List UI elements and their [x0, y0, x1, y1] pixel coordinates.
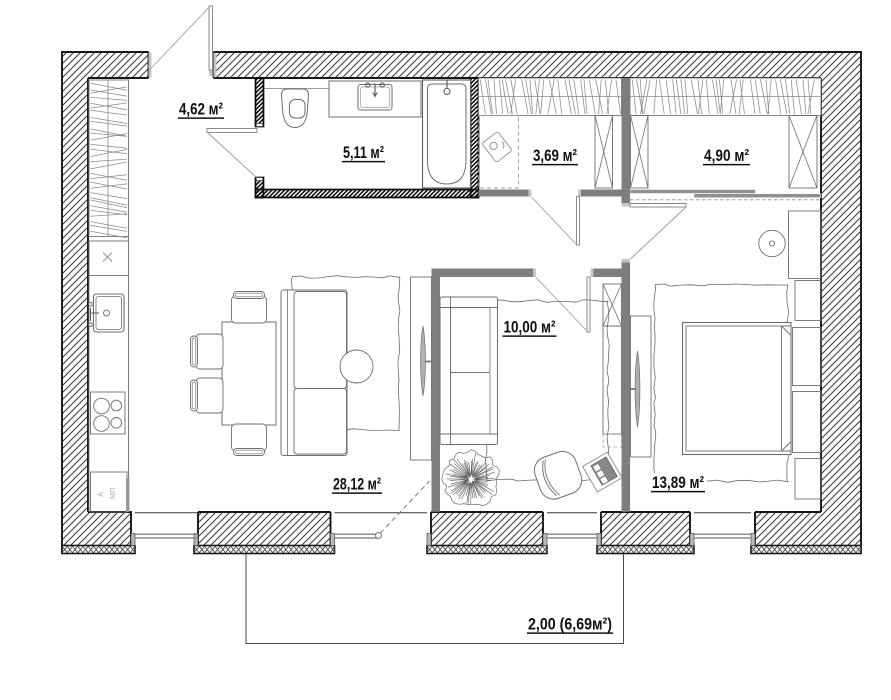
svg-text:4,62 м²: 4,62 м² — [179, 100, 223, 119]
svg-text:2,00 (6,69м²): 2,00 (6,69м²) — [528, 615, 612, 634]
svg-text:4,90 м²: 4,90 м² — [704, 146, 749, 165]
svg-text:13,89 м²: 13,89 м² — [652, 473, 704, 492]
svg-text:A: A — [96, 492, 105, 497]
svg-text:5,11 м²: 5,11 м² — [343, 143, 384, 162]
svg-text:3,69 м²: 3,69 м² — [533, 146, 577, 165]
svg-text:МП: МП — [108, 487, 117, 499]
svg-text:28,12 м²: 28,12 м² — [333, 475, 381, 494]
svg-text:10,00 м²: 10,00 м² — [504, 318, 556, 337]
